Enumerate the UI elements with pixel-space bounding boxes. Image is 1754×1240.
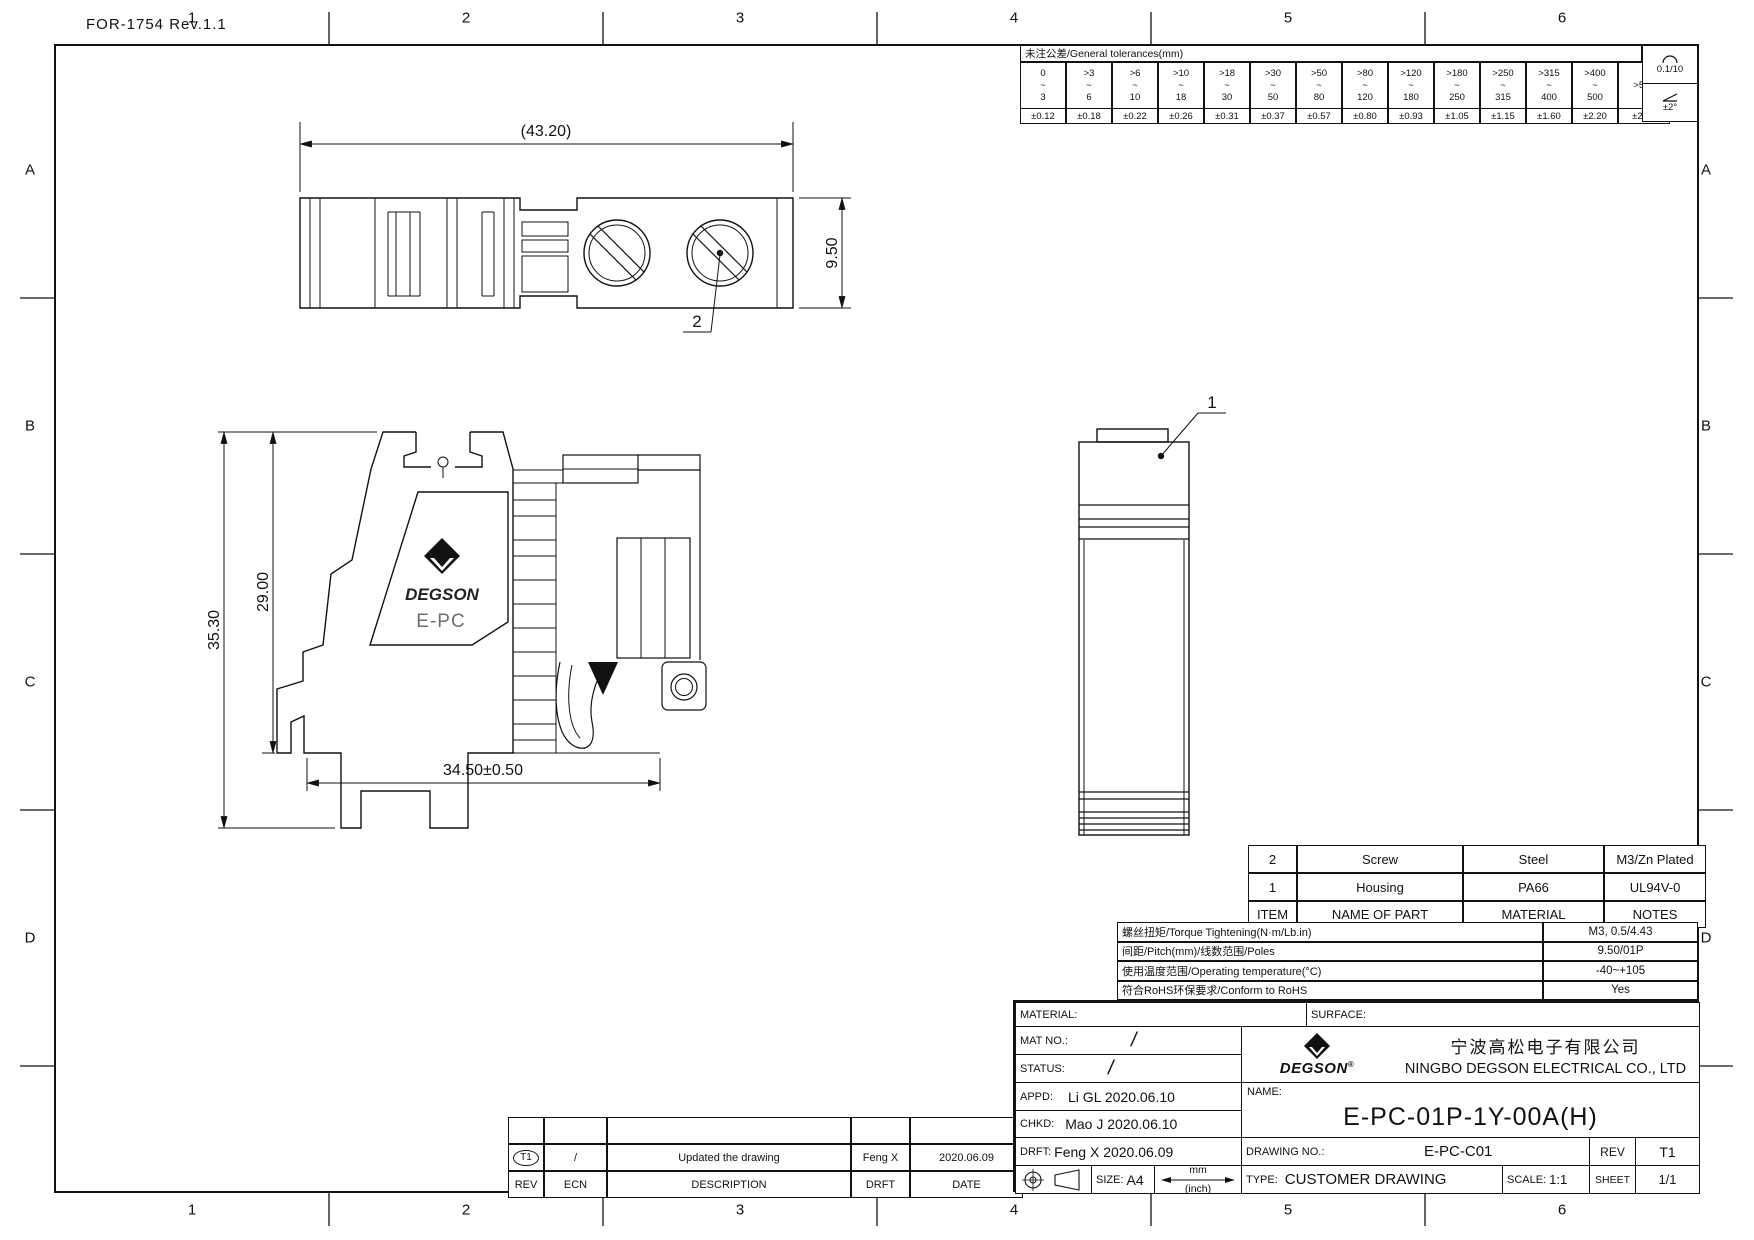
form-reference: FOR-1754 Rev.1.1	[86, 16, 227, 33]
drawing-no-label: DRAWING NO.:	[1242, 1146, 1327, 1158]
zone-col-bottom: 2	[462, 1202, 470, 1219]
zone-col-bottom: 4	[1010, 1202, 1018, 1219]
zone-row-right: C	[1701, 674, 1712, 691]
tolerance-value-cell: ±0.12	[1020, 108, 1066, 124]
revision-header-row: REVECNDESCRIPTIONDRFTDATE	[508, 1171, 1013, 1198]
company-name-en: NINGBO DEGSON ELECTRICAL CO., LTD	[1405, 1061, 1686, 1077]
zone-row-right: A	[1701, 162, 1711, 179]
range-to: 18	[1176, 92, 1187, 104]
flatness-icon	[1661, 55, 1679, 64]
spec-value: -40~+105	[1543, 961, 1698, 981]
dim-body-height: 29.00	[255, 572, 272, 612]
range-from: >250	[1492, 68, 1513, 80]
parts-row: 2ScrewSteelM3/Zn Plated	[1248, 845, 1698, 873]
spec-label: 间距/Pitch(mm)/线数范围/Poles	[1117, 942, 1543, 962]
range-from: >50	[1311, 68, 1327, 80]
tolerance-ranges-row: 0~3>3~6>6~10>10~18>18~30>30~50>50~80>80~…	[1020, 62, 1642, 108]
flatness-tolerance: 0.1/10	[1643, 46, 1697, 83]
range-from: >120	[1400, 68, 1421, 80]
degson-logo-mark	[424, 538, 460, 574]
revision-cell: 2020.06.09	[910, 1144, 1023, 1171]
rev-label-cell: REV	[1589, 1137, 1636, 1166]
parts-cell: UL94V-0	[1604, 873, 1706, 901]
zone-col-bottom: 3	[736, 1202, 744, 1219]
revision-cell: T1	[508, 1144, 544, 1171]
parts-row: 1HousingPA66UL94V-0	[1248, 873, 1698, 901]
zone-col-top: 4	[1010, 10, 1018, 27]
drft-value: Feng X 2020.06.09	[1054, 1144, 1173, 1160]
appd-value: Li GL 2020.06.10	[1068, 1089, 1175, 1105]
angle-icon	[1661, 93, 1679, 102]
tolerance-range-cell: >400~500	[1572, 62, 1618, 110]
zone-col-bottom: 6	[1558, 1202, 1566, 1219]
tolerance-special-box: 0.1/10 ±2°	[1642, 45, 1698, 122]
revision-cell	[508, 1117, 544, 1144]
tolerance-range-cell: >3~6	[1066, 62, 1112, 110]
revision-empty-row	[508, 1117, 1013, 1144]
surface-cell: SURFACE:	[1306, 1002, 1700, 1027]
name-label: NAME:	[1247, 1086, 1282, 1098]
sheet-label: SHEET	[1595, 1174, 1630, 1186]
range-tilde: ~	[1224, 80, 1230, 92]
tolerance-range-cell: >30~50	[1250, 62, 1296, 110]
parts-cell: PA66	[1463, 873, 1604, 901]
tolerance-range-cell: >180~250	[1434, 62, 1480, 110]
revision-rev-badge: T1	[513, 1150, 539, 1166]
screw-1	[584, 220, 650, 286]
spec-label: 使用温度范围/Operating temperature(°C)	[1117, 961, 1543, 981]
zone-row-left: C	[25, 674, 36, 691]
company-cell: DEGSON® 宁波高松电子有限公司 NINGBO DEGSON ELECTRI…	[1241, 1026, 1700, 1083]
spec-label: 符合RoHS环保要求/Conform to RoHS	[1117, 981, 1543, 1001]
range-to: 180	[1403, 92, 1419, 104]
tolerance-value-cell: ±0.57	[1296, 108, 1342, 124]
callout-housing: 1	[1207, 393, 1216, 412]
zone-row-right: B	[1701, 418, 1711, 435]
range-to: 400	[1541, 92, 1557, 104]
range-from: >30	[1265, 68, 1281, 80]
revision-table: T1/Updated the drawingFeng X2020.06.09RE…	[508, 1117, 1013, 1192]
degson-logo-icon	[1303, 1032, 1331, 1060]
range-from: >80	[1357, 68, 1373, 80]
range-to: 250	[1449, 92, 1465, 104]
zone-row-left: B	[25, 418, 35, 435]
angle-value: ±2°	[1663, 102, 1677, 113]
range-to: 80	[1314, 92, 1325, 104]
rev-value-cell: T1	[1635, 1137, 1700, 1166]
status-value: /	[1106, 1057, 1116, 1080]
range-from: >315	[1538, 68, 1559, 80]
size-cell: SIZE: A4	[1091, 1165, 1155, 1194]
zone-col-top: 1	[188, 10, 196, 27]
zone-col-top: 5	[1284, 10, 1292, 27]
range-tilde: ~	[1178, 80, 1184, 92]
size-value: A4	[1127, 1172, 1144, 1188]
spec-value: M3, 0.5/4.43	[1543, 922, 1698, 942]
sheet-value-cell: 1/1	[1635, 1165, 1700, 1194]
tolerance-range-cell: >315~400	[1526, 62, 1572, 110]
revision-cell	[607, 1117, 851, 1144]
range-from: >400	[1584, 68, 1605, 80]
range-from: 0	[1040, 68, 1045, 80]
chkd-value: Mao J 2020.06.10	[1065, 1116, 1177, 1132]
range-tilde: ~	[1454, 80, 1460, 92]
sheet-label-cell: SHEET	[1589, 1165, 1636, 1194]
units-cell: mm (inch)	[1154, 1165, 1242, 1194]
chkd-cell: CHKD: Mao J 2020.06.10	[1015, 1110, 1242, 1138]
revision-cell: Feng X	[851, 1144, 910, 1171]
tolerance-value-cell: ±0.80	[1342, 108, 1388, 124]
parts-table: 2ScrewSteelM3/Zn Plated1HousingPA66UL94V…	[1248, 845, 1698, 922]
drawing-no-cell: DRAWING NO.: E-PC-C01	[1241, 1137, 1590, 1166]
company-names: 宁波高松电子有限公司 NINGBO DEGSON ELECTRICAL CO.,…	[1392, 1033, 1699, 1077]
range-tilde: ~	[1040, 80, 1046, 92]
material-label: MATERIAL:	[1016, 1009, 1080, 1021]
zone-col-top: 6	[1558, 10, 1566, 27]
range-from: >6	[1130, 68, 1141, 80]
range-from: >10	[1173, 68, 1189, 80]
tolerance-value-cell: ±1.05	[1434, 108, 1480, 124]
type-value: CUSTOMER DRAWING	[1285, 1171, 1447, 1188]
zone-row-left: D	[25, 930, 36, 947]
side-view-series: E-PC	[416, 611, 465, 632]
mat-no-value: /	[1129, 1029, 1139, 1052]
rev-label: REV	[1600, 1145, 1625, 1159]
spec-row: 螺丝扭矩/Torque Tightening(N·m/Lb.in)M3, 0.5…	[1117, 922, 1698, 942]
range-tilde: ~	[1132, 80, 1138, 92]
tolerance-range-cell: >18~30	[1204, 62, 1250, 110]
range-to: 10	[1130, 92, 1141, 104]
scale-label: SCALE:	[1503, 1174, 1549, 1186]
range-to: 3	[1040, 92, 1045, 104]
tolerance-value-cell: ±0.37	[1250, 108, 1296, 124]
zone-row-left: A	[25, 162, 35, 179]
projection-cell	[1015, 1165, 1092, 1194]
drft-cell: DRFT: Feng X 2020.06.09	[1015, 1137, 1242, 1166]
tolerance-value-cell: ±1.15	[1480, 108, 1526, 124]
tolerance-values-row: ±0.12±0.18±0.22±0.26±0.31±0.37±0.57±0.80…	[1020, 108, 1642, 122]
tolerance-value-cell: ±0.22	[1112, 108, 1158, 124]
flatness-value: 0.1/10	[1657, 64, 1683, 75]
revision-cell	[851, 1117, 910, 1144]
tolerance-value-cell: ±1.60	[1526, 108, 1572, 124]
mat-no-cell: MAT NO.: /	[1015, 1026, 1242, 1055]
parts-cell: Housing	[1297, 873, 1463, 901]
units-mm: mm	[1189, 1165, 1207, 1176]
range-from: >3	[1084, 68, 1095, 80]
projection-symbol-icon	[1021, 1169, 1087, 1191]
tolerance-value-cell: ±0.93	[1388, 108, 1434, 124]
tolerance-value-cell: ±0.26	[1158, 108, 1204, 124]
range-tilde: ~	[1546, 80, 1552, 92]
spec-value: 9.50/01P	[1543, 942, 1698, 962]
parts-cell: M3/Zn Plated	[1604, 845, 1706, 873]
company-logo: DEGSON®	[1242, 1032, 1392, 1077]
tolerance-range-cell: >6~10	[1112, 62, 1158, 110]
zone-row-right: D	[1701, 930, 1712, 947]
revision-cell: DRFT	[851, 1171, 910, 1198]
tolerance-range-cell: >10~18	[1158, 62, 1204, 110]
spec-row: 符合RoHS环保要求/Conform to RoHSYes	[1117, 981, 1698, 1001]
title-block: MATERIAL: SURFACE: MAT NO.: / STATUS: / …	[1013, 1000, 1698, 1192]
status-cell: STATUS: /	[1015, 1054, 1242, 1083]
range-from: >18	[1219, 68, 1235, 80]
sheet-value: 1/1	[1658, 1172, 1676, 1187]
range-tilde: ~	[1086, 80, 1092, 92]
brand-name: DEGSON®	[1280, 1060, 1354, 1077]
revision-cell: DESCRIPTION	[607, 1171, 851, 1198]
status-label: STATUS:	[1016, 1063, 1068, 1075]
name-cell: NAME: E-PC-01P-1Y-00A(H)	[1241, 1082, 1700, 1138]
rev-value: T1	[1659, 1144, 1675, 1160]
spec-table: 螺丝扭矩/Torque Tightening(N·m/Lb.in)M3, 0.5…	[1117, 922, 1698, 1000]
scale-value: 1:1	[1549, 1172, 1567, 1187]
revision-cell: ECN	[544, 1171, 607, 1198]
range-tilde: ~	[1316, 80, 1322, 92]
spec-value: Yes	[1543, 981, 1698, 1001]
end-view	[1079, 429, 1189, 835]
dim-end-height: 9.50	[824, 237, 841, 268]
parts-cell: 2	[1248, 845, 1297, 873]
appd-label: APPD:	[1016, 1091, 1056, 1103]
tolerance-value-cell: ±0.18	[1066, 108, 1112, 124]
dim-bottom-length: 34.50±0.50	[443, 762, 523, 779]
appd-cell: APPD: Li GL 2020.06.10	[1015, 1082, 1242, 1111]
range-to: 6	[1086, 92, 1091, 104]
mat-no-label: MAT NO.:	[1016, 1035, 1071, 1047]
spec-row: 间距/Pitch(mm)/线数范围/Poles9.50/01P	[1117, 942, 1698, 962]
angle-tolerance: ±2°	[1643, 83, 1697, 121]
zone-col-top: 2	[462, 10, 470, 27]
units-inch: (inch)	[1185, 1184, 1211, 1195]
type-label: TYPE:	[1242, 1174, 1281, 1186]
tolerance-range-cell: >250~315	[1480, 62, 1526, 110]
range-from: >180	[1446, 68, 1467, 80]
revision-cell	[910, 1117, 1023, 1144]
drawing-sheet: DEGSON E-PC	[0, 0, 1754, 1240]
range-tilde: ~	[1500, 80, 1506, 92]
revision-cell: DATE	[910, 1171, 1023, 1198]
tolerance-range-cell: 0~3	[1020, 62, 1066, 110]
surface-label: SURFACE:	[1307, 1009, 1369, 1021]
spec-row: 使用温度范围/Operating temperature(°C)-40~+105	[1117, 961, 1698, 981]
company-name-cn: 宁波高松电子有限公司	[1451, 1033, 1641, 1058]
zone-col-top: 3	[736, 10, 744, 27]
revision-cell: REV	[508, 1171, 544, 1198]
dimensions: (43.20) 9.50 35.30 29.00 34.50±0.50	[206, 122, 851, 828]
tolerance-value-cell: ±0.31	[1204, 108, 1250, 124]
range-tilde: ~	[1408, 80, 1414, 92]
revision-row: T1/Updated the drawingFeng X2020.06.09	[508, 1144, 1013, 1171]
range-to: 315	[1495, 92, 1511, 104]
parts-cell: Screw	[1297, 845, 1463, 873]
tolerance-range-cell: >120~180	[1388, 62, 1434, 110]
chkd-label: CHKD:	[1016, 1118, 1057, 1130]
dim-overall-width: (43.20)	[521, 123, 572, 140]
zone-col-bottom: 5	[1284, 1202, 1292, 1219]
callout-screw: 2	[692, 312, 701, 331]
scale-cell: SCALE: 1:1	[1502, 1165, 1590, 1194]
range-tilde: ~	[1270, 80, 1276, 92]
type-cell: TYPE: CUSTOMER DRAWING	[1241, 1165, 1503, 1194]
range-to: 120	[1357, 92, 1373, 104]
parts-cell: Steel	[1463, 845, 1604, 873]
revision-cell	[544, 1117, 607, 1144]
range-tilde: ~	[1592, 80, 1598, 92]
callouts: 2 1	[683, 250, 1226, 459]
zone-col-bottom: 1	[188, 1202, 196, 1219]
range-tilde: ~	[1362, 80, 1368, 92]
revision-cell: Updated the drawing	[607, 1144, 851, 1171]
parts-cell: 1	[1248, 873, 1297, 901]
dim-total-height: 35.30	[206, 610, 223, 650]
tolerance-range-cell: >50~80	[1296, 62, 1342, 110]
size-label: SIZE:	[1092, 1174, 1127, 1186]
material-cell: MATERIAL:	[1015, 1002, 1307, 1027]
drawing-no-value: E-PC-C01	[1327, 1143, 1589, 1160]
drft-label: DRFT:	[1016, 1146, 1054, 1158]
tolerance-range-cell: >80~120	[1342, 62, 1388, 110]
range-to: 30	[1222, 92, 1233, 104]
part-name: E-PC-01P-1Y-00A(H)	[1242, 1103, 1699, 1132]
range-to: 50	[1268, 92, 1279, 104]
spec-label: 螺丝扭矩/Torque Tightening(N·m/Lb.in)	[1117, 922, 1543, 942]
tolerance-value-cell: ±2.20	[1572, 108, 1618, 124]
tolerance-table-title: 未注公差/General tolerances(mm)	[1020, 45, 1642, 62]
revision-cell: /	[544, 1144, 607, 1171]
range-to: 500	[1587, 92, 1603, 104]
side-view-brand: DEGSON	[405, 585, 479, 604]
